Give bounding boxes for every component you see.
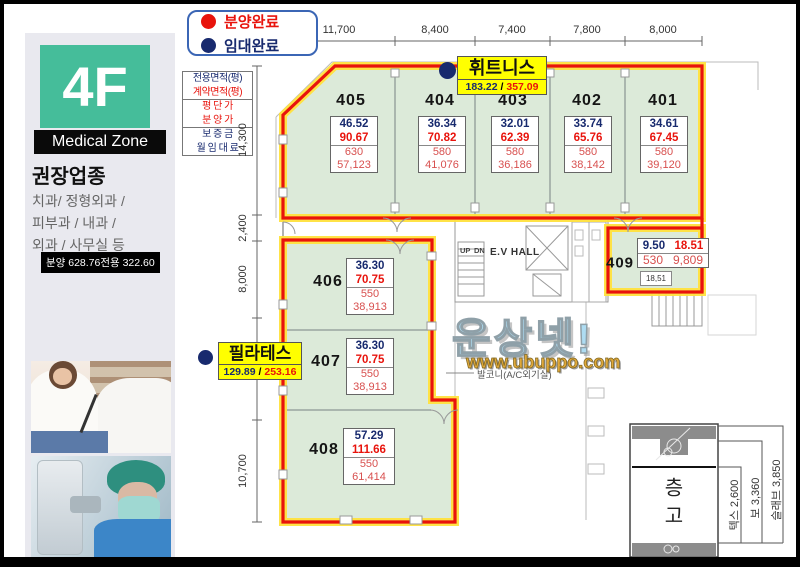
beam-height-label: 보 3,360 [747, 478, 763, 519]
unit-data-406: 36.30 70.75 550 38,913 [346, 258, 394, 315]
recommended-line: 치과/ 정형외과 / [32, 191, 125, 211]
dim-top: 8,400 [421, 24, 449, 36]
tenant-areas: 183.22 / 357.09 [458, 80, 546, 94]
unit-data-403: 32.01 62.39 580 36,186 [491, 116, 539, 173]
legend-sold-label: 분양완료 [224, 11, 279, 32]
tenant-tag-fitness: 휘트니스 183.22 / 357.09 [457, 56, 547, 95]
unit-label-402: 402 [572, 92, 602, 110]
tenant-tag-pilates: 필라테스 129.89 / 253.16 [218, 342, 302, 380]
exclusive-area: 34.61 [641, 117, 687, 131]
recommended-line: 피부과 / 내과 / [32, 213, 116, 233]
key-unit-price: 평 단 가 [183, 100, 252, 114]
contract-area: 65.76 [565, 131, 611, 146]
unit-data-408: 57.29 111.66 550 61,414 [343, 428, 395, 485]
unit-price: 550 [347, 368, 393, 381]
unit-data-402: 33.74 65.76 580 38,142 [564, 116, 612, 173]
dim-left: 2,400 [237, 214, 249, 242]
status-legend: 분양완료 임대완료 [187, 10, 318, 56]
sale-price: 38,913 [347, 381, 393, 394]
sidebar: 4F Medical Zone 권장업종 치과/ 정형외과 / 피부과 / 내과… [25, 33, 175, 560]
unit-label-408: 408 [309, 441, 339, 459]
unit-data-404: 36.34 70.82 580 41,076 [418, 116, 466, 173]
sale-price: 39,120 [641, 159, 687, 172]
exclusive-area: 32.01 [492, 117, 538, 131]
dim-top: 7,400 [498, 24, 526, 36]
key-exclusive-area: 전용면적(평) [183, 72, 252, 86]
ceiling-height-label: 층고 [658, 477, 687, 533]
ev-hall-label: E.V HALL [490, 247, 540, 258]
contract-area: 90.67 [331, 131, 377, 146]
unit-price: 580 [419, 146, 465, 159]
unit-data-407: 36.30 70.75 550 38,913 [346, 338, 394, 395]
dn-label: DN [474, 246, 485, 255]
contract-area: 70.82 [419, 131, 465, 146]
contract-area: 67.45 [641, 131, 687, 146]
exclusive-area: 57.29 [344, 429, 394, 443]
exclusive-area: 36.30 [347, 339, 393, 353]
child-face [53, 368, 71, 385]
exclusive-area: 33.74 [565, 117, 611, 131]
dim-top: 11,700 [323, 24, 356, 36]
dim-top: 7,800 [573, 24, 601, 36]
sale-price: 38,913 [347, 301, 393, 314]
unit-label-409: 409 [606, 255, 634, 272]
unit-price: 580 [492, 146, 538, 159]
jeans [31, 431, 108, 453]
sale-price: 38,142 [565, 159, 611, 172]
dim-left: 14,300 [237, 123, 249, 157]
legend-leased: 임대완료 [201, 35, 316, 56]
leased-dot-icon [439, 62, 456, 79]
dim-left: 8,000 [237, 265, 249, 293]
sale-price: 57,123 [331, 159, 377, 172]
exclusive-area: 36.30 [347, 259, 393, 273]
contract-area: 70.75 [347, 353, 393, 368]
dim-top: 8,000 [649, 24, 677, 36]
unit-label-407: 407 [311, 353, 341, 371]
up-label: UP [460, 246, 470, 255]
unit-price: 580 [641, 146, 687, 159]
unit-label-406: 406 [313, 273, 343, 291]
unit-label-405: 405 [336, 92, 366, 110]
sale-price: 9,809 [673, 254, 703, 267]
contract-area: 18.51 [675, 239, 704, 253]
legend-sold: 분양완료 [201, 11, 316, 32]
key-contract-area: 계약면적(평) [183, 86, 252, 101]
contract-area: 70.75 [347, 273, 393, 288]
balcony-label: 발코니(A/C외기실) [477, 367, 552, 381]
unit-label-401: 401 [648, 92, 678, 110]
legend-leased-label: 임대완료 [224, 35, 279, 56]
photo-consultation [31, 361, 171, 453]
zone-label: Medical Zone [34, 130, 166, 154]
unit-price: 550 [347, 288, 393, 301]
contract-area: 111.66 [344, 443, 394, 458]
unit-409-note: 18,51 [640, 271, 672, 286]
area-badge: 분양 628.76전용 322.60 [41, 252, 160, 273]
unit-price: 580 [565, 146, 611, 159]
unit-data-409: 9.50 18.51 530 9,809 [637, 238, 709, 268]
unit-data-401: 34.61 67.45 580 39,120 [640, 116, 688, 173]
unit-price: 530 [643, 254, 663, 267]
leased-dot-icon [198, 350, 213, 365]
contract-area: 62.39 [492, 131, 538, 146]
slab-height-label: 슬래브 3,850 [768, 460, 784, 521]
tex-height-label: 텍스 2,600 [726, 480, 742, 531]
sold-dot-icon [201, 14, 216, 29]
exclusive-area: 46.52 [331, 117, 377, 131]
floorplan-flyer: 4F Medical Zone 권장업종 치과/ 정형외과 / 피부과 / 내과… [0, 0, 800, 567]
sale-price: 41,076 [419, 159, 465, 172]
surgical-gown [94, 519, 171, 557]
unit-price: 630 [331, 146, 377, 159]
sale-price: 61,414 [344, 471, 394, 484]
tenant-areas: 129.89 / 253.16 [219, 365, 301, 379]
dim-left: 10,700 [237, 454, 249, 488]
exclusive-area: 36.34 [419, 117, 465, 131]
exclusive-area: 9.50 [643, 239, 665, 253]
unit-label-404: 404 [425, 92, 455, 110]
tenant-name: 휘트니스 [458, 57, 546, 80]
leased-dot-icon [201, 38, 216, 53]
photo-surgery [31, 456, 171, 557]
sale-price: 36,186 [492, 159, 538, 172]
unit-data-405: 46.52 90.67 630 57,123 [330, 116, 378, 173]
microscope-head [70, 496, 101, 512]
unit-price: 550 [344, 458, 394, 471]
tenant-name: 필라테스 [219, 343, 301, 365]
recommended-heading: 권장업종 [32, 160, 106, 189]
floor-label: 4F [40, 45, 150, 128]
